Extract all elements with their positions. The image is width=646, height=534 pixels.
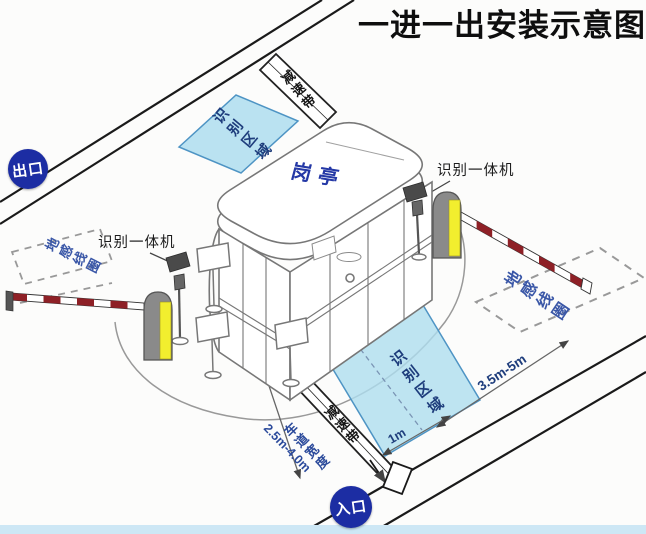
recognition-machine-label-exit: 识别一体机 <box>98 236 176 251</box>
entrance-badge: 入口 <box>330 486 372 528</box>
booth-table <box>337 253 361 262</box>
bottom-pavement-strip <box>0 525 646 534</box>
exit-badge-label: 出口 <box>11 156 46 181</box>
diagram-title: 一进一出安装示意图 <box>358 10 646 41</box>
barrier-gate-exit <box>6 291 172 360</box>
camera-head-exit <box>166 252 190 272</box>
exit-badge: 出口 <box>8 149 48 189</box>
recognition-machine-label-entry: 识别一体机 <box>437 164 515 179</box>
entrance-badge-label: 入口 <box>334 494 369 519</box>
installation-diagram: 一进一出安装示意图 出口 入口 岗亭 识别区域 识别区域 减速带 减速带 地感线… <box>0 0 646 534</box>
